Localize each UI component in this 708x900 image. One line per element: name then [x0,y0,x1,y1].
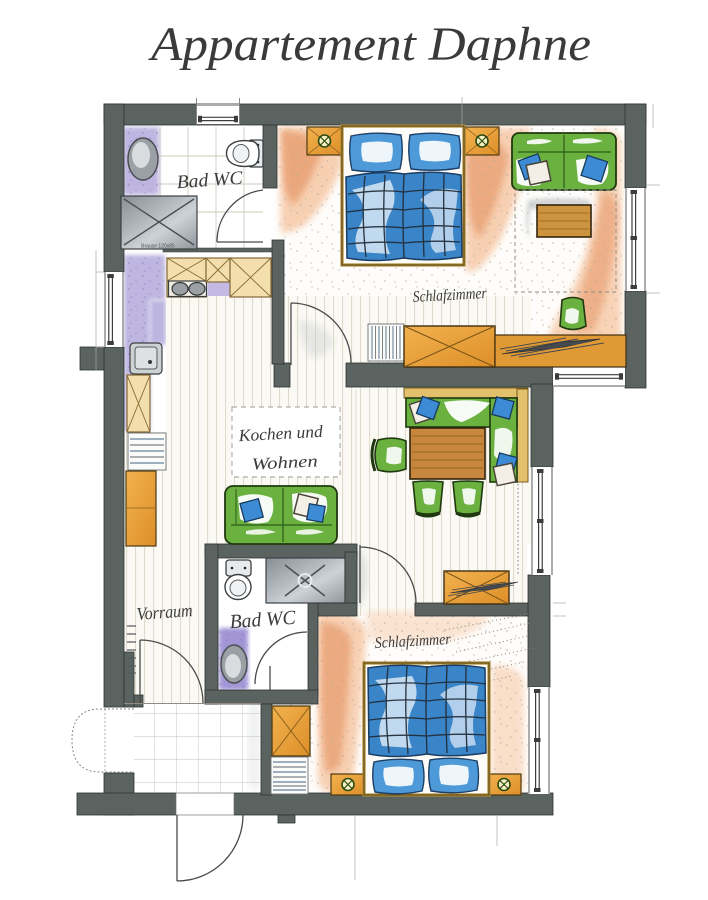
svg-text:Bad WC: Bad WC [229,607,297,634]
svg-text:Brause 120x85: Brause 120x85 [141,244,175,250]
svg-text:Vorraum: Vorraum [136,600,193,624]
svg-text:Appartement Daphne: Appartement Daphne [148,18,591,71]
svg-text:Wohnen: Wohnen [251,451,318,473]
